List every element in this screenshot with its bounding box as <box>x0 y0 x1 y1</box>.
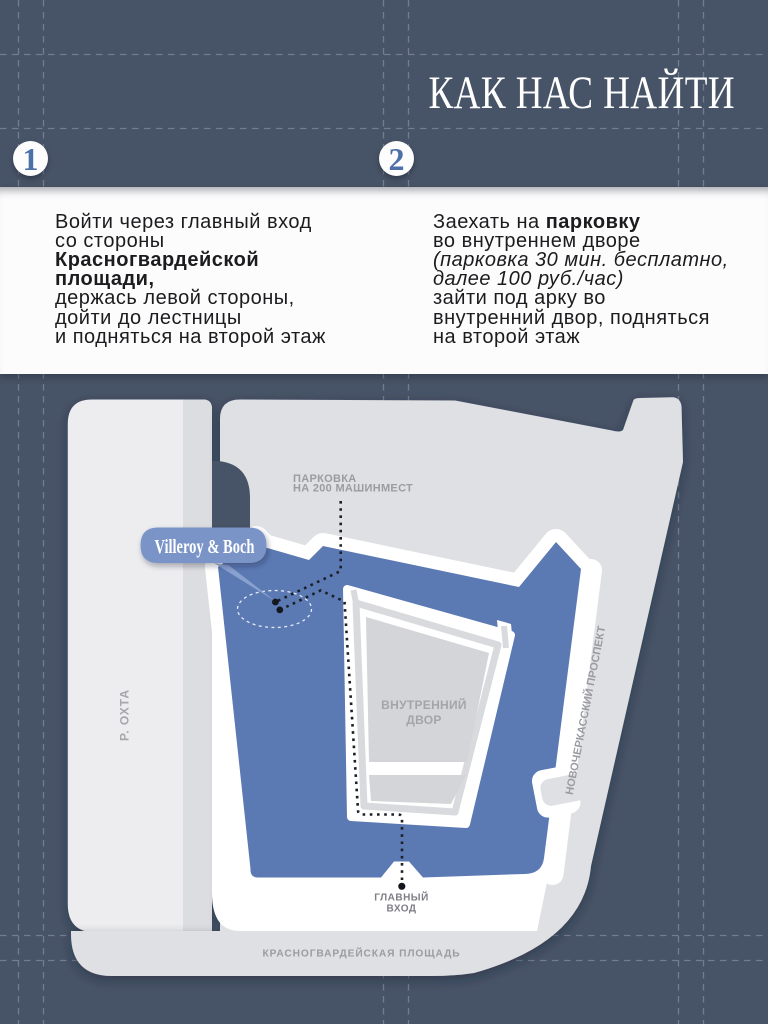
svg-text:НА 200 МАШИНМЕСТ: НА 200 МАШИНМЕСТ <box>293 483 413 495</box>
svg-text:ДВОР: ДВОР <box>406 713 441 727</box>
svg-text:КРАСНОГВАРДЕЙСКАЯ ПЛОЩАДЬ: КРАСНОГВАРДЕЙСКАЯ ПЛОЩАДЬ <box>262 947 460 960</box>
svg-text:Р. ОХТА: Р. ОХТА <box>118 689 132 741</box>
svg-text:ГЛАВНЫЙ: ГЛАВНЫЙ <box>374 891 429 904</box>
svg-text:ВНУТРЕННИЙ: ВНУТРЕННИЙ <box>381 697 467 712</box>
svg-text:Villeroy & Boch: Villeroy & Boch <box>155 536 255 558</box>
svg-text:ВХОД: ВХОД <box>386 904 416 915</box>
